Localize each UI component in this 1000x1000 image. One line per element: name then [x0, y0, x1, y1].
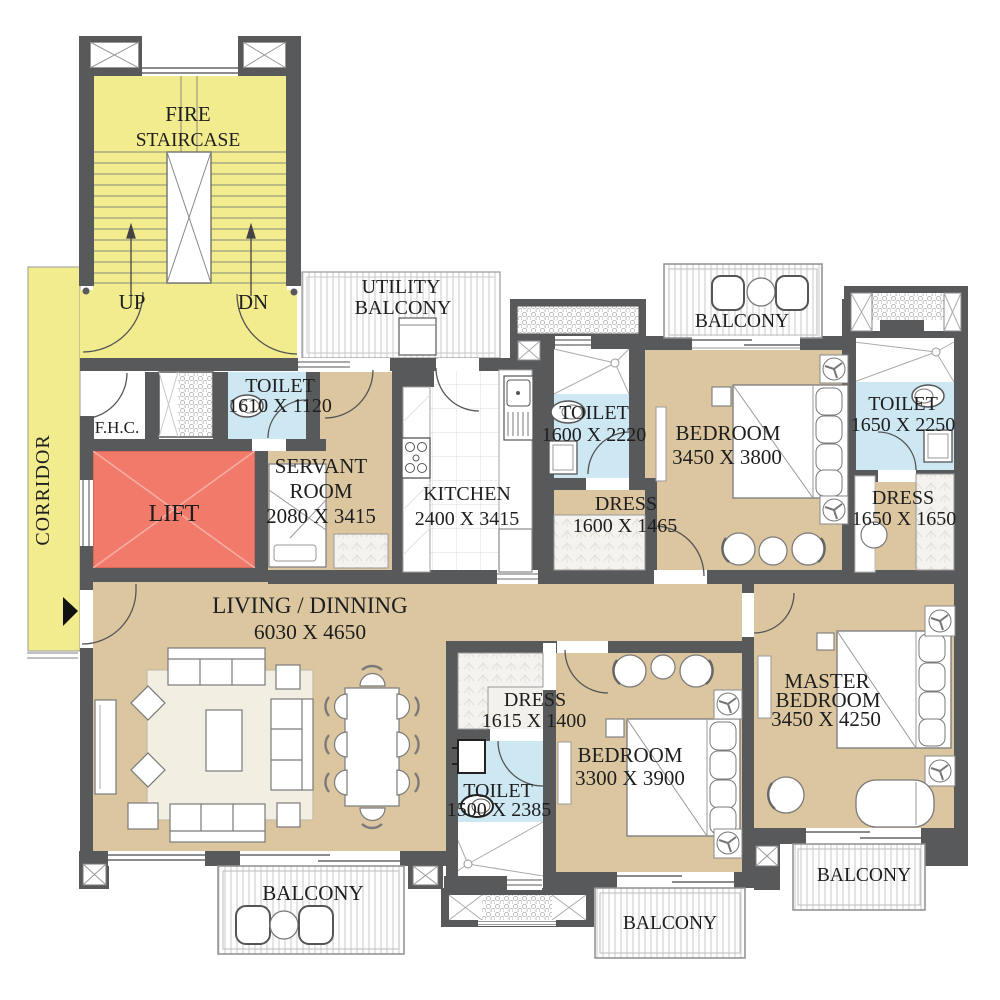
svg-text:TOILET: TOILET: [559, 402, 629, 424]
svg-text:1650 X 2250: 1650 X 2250: [851, 414, 955, 436]
svg-text:1610 X 1120: 1610 X 1120: [228, 395, 332, 417]
svg-text:BALCONY: BALCONY: [262, 881, 364, 905]
svg-text:CORRIDOR: CORRIDOR: [32, 434, 54, 545]
svg-text:1500 X 2385: 1500 X 2385: [447, 799, 551, 821]
svg-text:BALCONY: BALCONY: [695, 311, 789, 332]
svg-text:3450 X 4250: 3450 X 4250: [771, 707, 881, 731]
svg-text:LIFT: LIFT: [149, 501, 200, 527]
svg-text:2080 X 3415: 2080 X 3415: [266, 504, 376, 528]
svg-text:LIVING / DINNING: LIVING / DINNING: [212, 593, 407, 618]
svg-text:ROOM: ROOM: [289, 479, 352, 503]
svg-text:DRESS: DRESS: [595, 493, 657, 515]
svg-text:BEDROOM: BEDROOM: [675, 421, 780, 445]
svg-text:1600 X 1465: 1600 X 1465: [573, 515, 677, 537]
svg-text:2400 X 3415: 2400 X 3415: [415, 508, 519, 530]
svg-text:STAIRCASE: STAIRCASE: [136, 130, 241, 151]
svg-text:1600 X 2220: 1600 X 2220: [542, 424, 646, 446]
svg-text:BALCONY: BALCONY: [817, 865, 911, 886]
svg-text:SERVANT: SERVANT: [275, 454, 368, 478]
svg-text:TOILET: TOILET: [245, 375, 315, 397]
svg-text:1650 X 1650: 1650 X 1650: [852, 508, 956, 530]
svg-text:6030 X 4650: 6030 X 4650: [254, 620, 366, 644]
svg-text:1615 X 1400: 1615 X 1400: [482, 710, 586, 732]
svg-text:BALCONY: BALCONY: [355, 297, 452, 319]
svg-text:BALCONY: BALCONY: [623, 913, 717, 934]
svg-text:3300 X 3900: 3300 X 3900: [575, 766, 685, 790]
svg-text:3450 X 3800: 3450 X 3800: [672, 445, 782, 469]
svg-text:UTILITY: UTILITY: [362, 276, 441, 298]
svg-text:F.H.C.: F.H.C.: [95, 418, 139, 437]
svg-text:DRESS: DRESS: [872, 487, 934, 509]
svg-text:DN: DN: [238, 290, 268, 314]
svg-text:DRESS: DRESS: [504, 689, 566, 711]
svg-text:TOILET: TOILET: [868, 393, 938, 415]
svg-text:FIRE: FIRE: [165, 102, 211, 126]
svg-text:BEDROOM: BEDROOM: [577, 743, 682, 767]
svg-text:UP: UP: [119, 290, 146, 314]
svg-text:KITCHEN: KITCHEN: [423, 483, 511, 505]
